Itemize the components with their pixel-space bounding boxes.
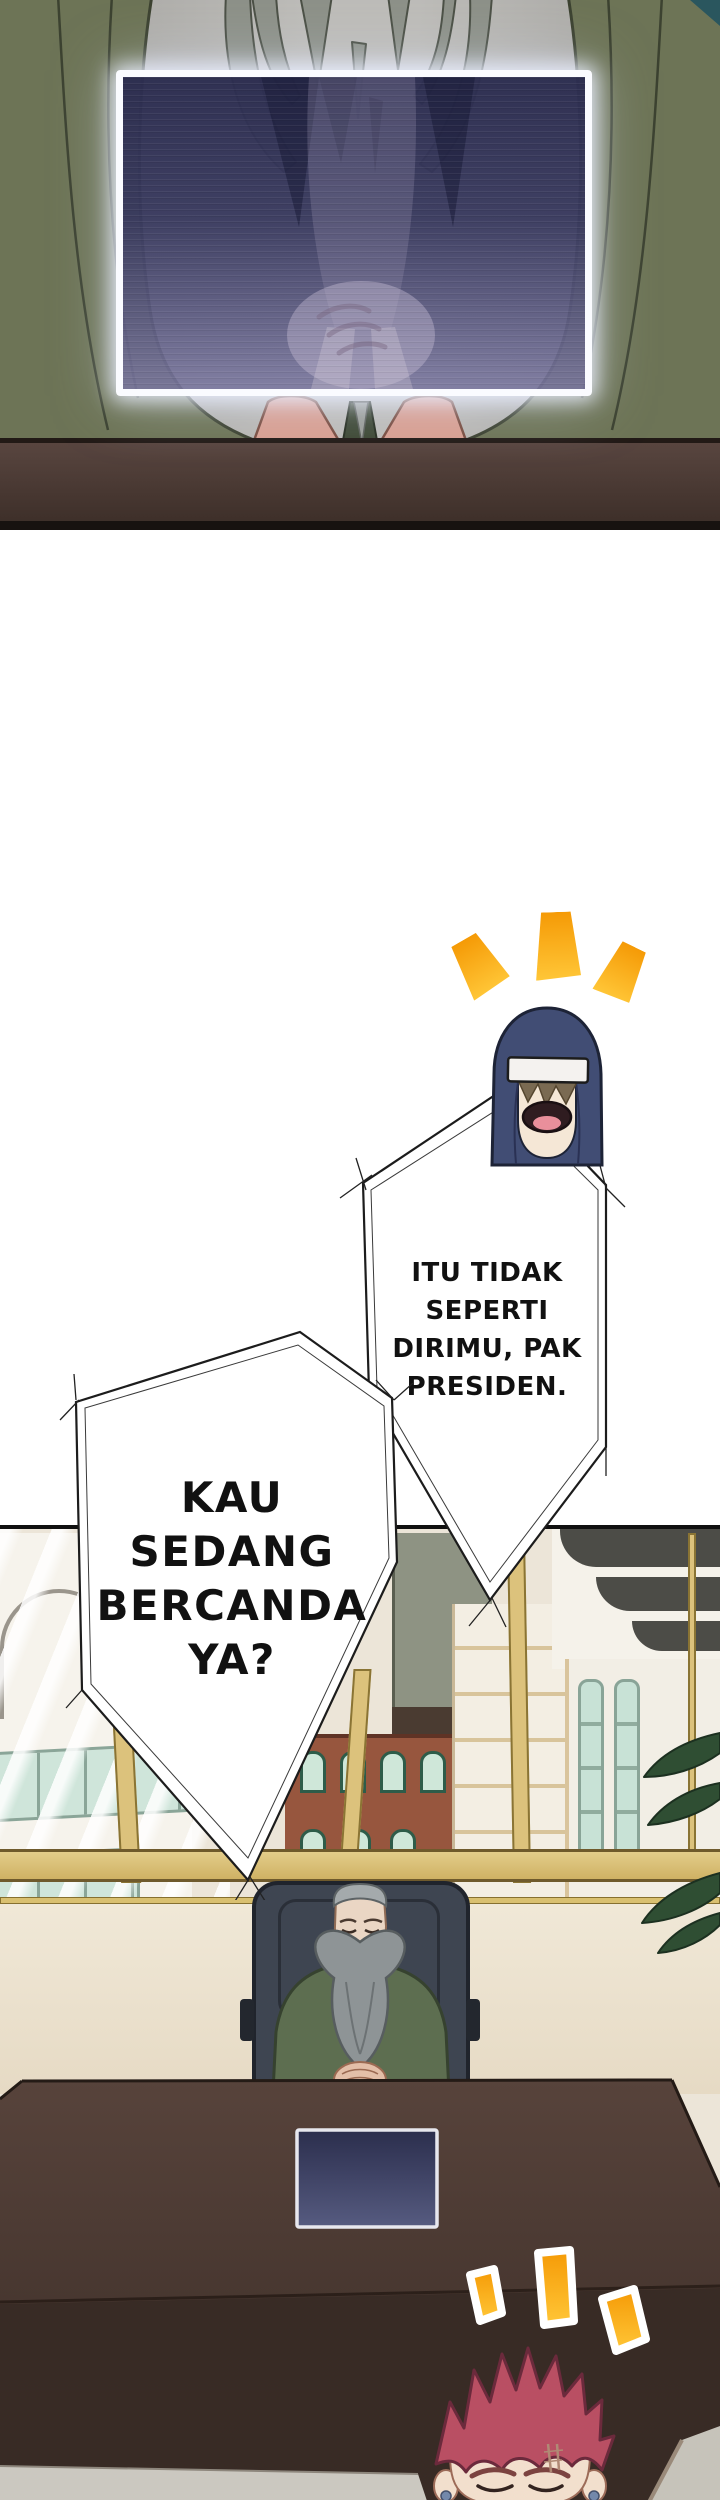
panel-top [0,0,720,530]
emphasis-mark [602,2289,646,2351]
earring-right [589,2491,599,2500]
white-headband [508,1057,588,1082]
top-panel-desk [0,438,720,530]
comic-page: ITU TIDAK SEPERTI DIRIMU, PAK PRESIDEN. … [0,0,720,2500]
bubble-2-line-4: YA? [187,1635,276,1684]
screen-scanlines [123,77,585,389]
bubble-2-line-1: KAU [181,1473,283,1522]
emphasis-mark [444,929,511,1001]
desk-screen [297,2130,437,2227]
bubble-1-line-1: ITU TIDAK [411,1258,563,1288]
red-spiky-haired-character [420,2344,620,2500]
bubble-2-line-3: BERCANDA [97,1581,368,1630]
emphasis-mark [592,938,653,1006]
hologram-screen [116,70,592,396]
emphasis-mark [538,2250,574,2325]
bubble-2-line-2: SEDANG [130,1527,335,1576]
bubble-1-line-3: DIRIMU, PAK [392,1334,582,1364]
earring-left [441,2491,451,2500]
bubble-1-line-4: PRESIDEN. [407,1372,568,1402]
spiky-red-hair [436,2348,614,2472]
hooded-laughing-character [480,1000,630,1175]
chair-armrest-right [466,1999,480,2041]
tongue [533,1116,561,1130]
speech-bubble-2: KAU SEDANG BERCANDA YA? [60,1332,413,1900]
bubble-1-line-2: SEPERTI [425,1296,548,1326]
emphasis-mark [533,911,581,981]
emphasis-mark [470,2269,502,2321]
chair-armrest-left [240,1999,254,2041]
